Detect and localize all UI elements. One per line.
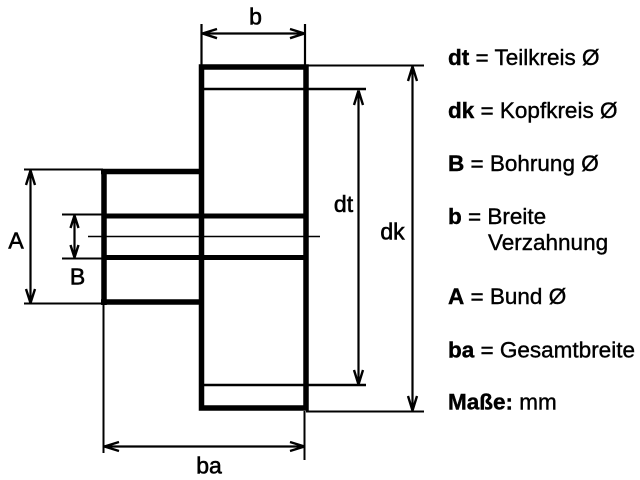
svg-text:dt: dt — [334, 191, 354, 217]
svg-text:dk: dk — [380, 219, 405, 245]
svg-text:Verzahnung: Verzahnung — [488, 230, 608, 255]
svg-text:A: A — [8, 228, 24, 254]
svg-text:B: B — [70, 264, 85, 290]
svg-text:ba = Gesamtbreite: ba = Gesamtbreite — [448, 338, 635, 363]
svg-text:A = Bund Ø: A = Bund Ø — [448, 284, 566, 309]
svg-text:B = Bohrung Ø: B = Bohrung Ø — [448, 151, 599, 176]
svg-text:Maße: mm: Maße: mm — [448, 390, 557, 415]
svg-text:b = Breite: b = Breite — [448, 204, 546, 229]
svg-text:dk = Kopfkreis Ø: dk = Kopfkreis Ø — [448, 98, 617, 123]
svg-text:b: b — [249, 4, 262, 30]
svg-text:dt = Teilkreis Ø: dt = Teilkreis Ø — [448, 45, 600, 70]
svg-text:ba: ba — [196, 453, 222, 479]
